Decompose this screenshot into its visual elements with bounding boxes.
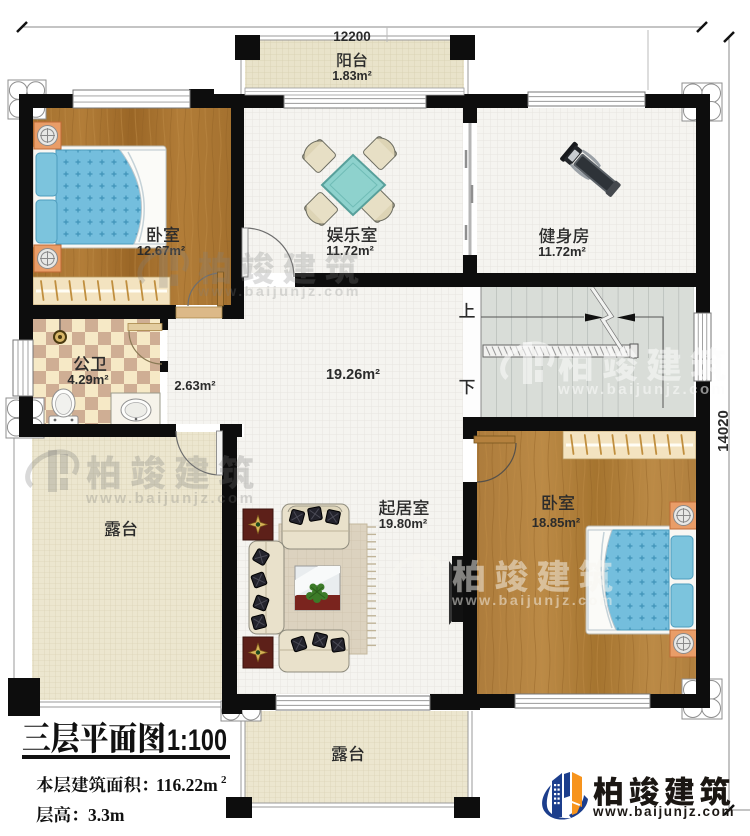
svg-text:www.baijunjz.com: www.baijunjz.com xyxy=(592,804,735,819)
svg-text:www.baijunjz.com: www.baijunjz.com xyxy=(451,593,615,609)
svg-text:14020: 14020 xyxy=(715,410,732,452)
svg-text:11.72m²: 11.72m² xyxy=(538,244,586,259)
svg-text:12200: 12200 xyxy=(333,29,371,44)
svg-text:1:100: 1:100 xyxy=(167,724,227,757)
svg-text:2.63m²: 2.63m² xyxy=(174,378,216,393)
svg-text:19.80m²: 19.80m² xyxy=(379,516,428,531)
svg-text:www.baijunjz.com: www.baijunjz.com xyxy=(85,490,255,507)
svg-text:3.3m: 3.3m xyxy=(88,805,125,825)
svg-text:4.29m²: 4.29m² xyxy=(67,372,109,387)
svg-text:2: 2 xyxy=(221,774,227,786)
svg-text:18.85m²: 18.85m² xyxy=(532,515,581,530)
svg-text:19.26m²: 19.26m² xyxy=(326,367,380,383)
svg-text:1.83m²: 1.83m² xyxy=(332,69,372,83)
svg-text:www.baijunjz.com: www.baijunjz.com xyxy=(557,381,727,398)
svg-text:116.22m: 116.22m xyxy=(156,775,218,795)
svg-text:www.baijunjz.com: www.baijunjz.com xyxy=(197,284,361,300)
